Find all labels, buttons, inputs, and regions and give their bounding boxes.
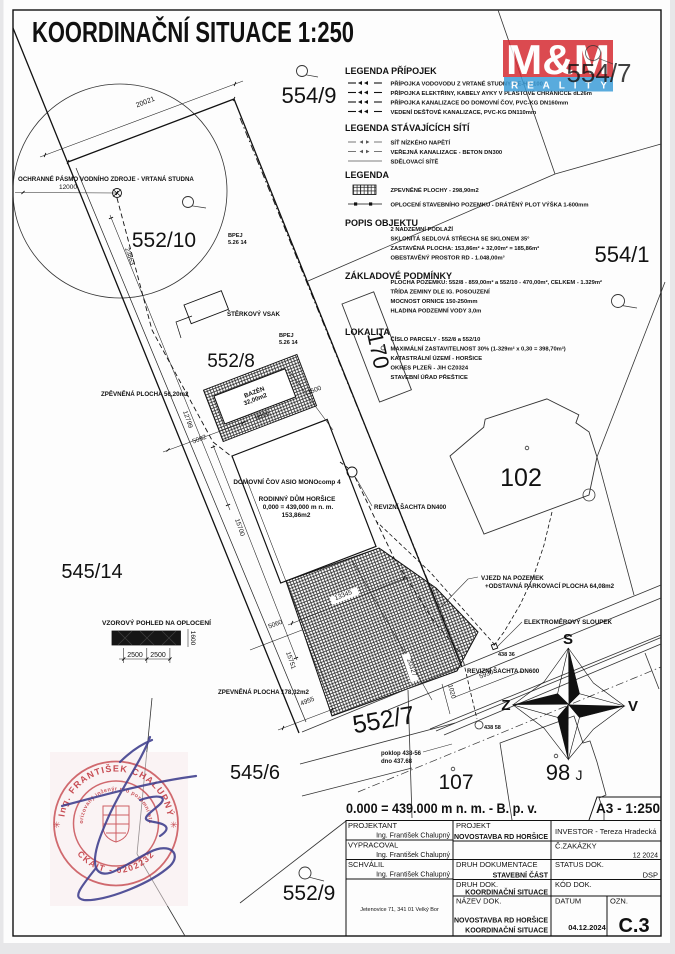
svg-text:DRUH DOKUMENTACE: DRUH DOKUMENTACE [456,860,538,869]
svg-text:107: 107 [438,771,473,794]
svg-text:PŘÍPOJKA KANALIZACE DO DOMOVNÍ: PŘÍPOJKA KANALIZACE DO DOMOVNÍ ČOV, PVC-… [391,99,569,107]
svg-text:LEGENDA PŘÍPOJEK: LEGENDA PŘÍPOJEK [345,65,437,76]
svg-text:545/6: 545/6 [230,762,280,784]
svg-text:PLOCHA POZEMKU: 552/8 - 859,00: PLOCHA POZEMKU: 552/8 - 859,00m² a 552/1… [391,279,603,286]
svg-text:Z: Z [501,697,510,714]
svg-text:0.000 = 439.000 m n. m. - B. p: 0.000 = 439.000 m n. m. - B. p. v. [346,801,537,816]
svg-text:OKRES PLZEŇ - JIH CZ0324: OKRES PLZEŇ - JIH CZ0324 [391,364,469,372]
svg-text:OPLOCENÍ STAVEBNÍHO POZEMKU -: OPLOCENÍ STAVEBNÍHO POZEMKU - DRÁTĚNÝ PL… [391,201,589,209]
svg-text:KATASTRÁLNÍ ÚZEMÍ - HORŠICE: KATASTRÁLNÍ ÚZEMÍ - HORŠICE [391,354,483,362]
svg-text:PROJEKTANT: PROJEKTANT [348,821,397,830]
svg-text:2500: 2500 [150,652,166,659]
svg-text:ČÍSLO PARCELY - 552/8 a 552/10: ČÍSLO PARCELY - 552/8 a 552/10 [391,335,481,343]
svg-text:TŘÍDA ZEMINY DLE IG. POSOUZENÍ: TŘÍDA ZEMINY DLE IG. POSOUZENÍ [391,288,491,296]
svg-text:✳: ✳ [170,820,178,830]
svg-text:DATUM: DATUM [555,897,581,906]
svg-text:554/1: 554/1 [594,242,649,267]
svg-text:552/10: 552/10 [132,229,196,252]
svg-text:REVIZNÍ ŠACHTA DN400: REVIZNÍ ŠACHTA DN400 [374,503,447,511]
svg-text:HLADINA PODZEMNÍ VODY 3,0m: HLADINA PODZEMNÍ VODY 3,0m [391,307,482,315]
svg-text:INVESTOR - Tereza Hradecká: INVESTOR - Tereza Hradecká [555,827,657,836]
svg-text:Č.ZAKÁZKY: Č.ZAKÁZKY [555,842,597,851]
svg-text:KOORDINAČNÍ SITUACE: KOORDINAČNÍ SITUACE [465,926,548,935]
svg-text:BPEJ: BPEJ [279,333,294,339]
svg-text:LEGENDA: LEGENDA [345,170,390,180]
svg-text:C.3: C.3 [618,915,649,937]
svg-text:DSP: DSP [643,871,658,880]
svg-text:VYPRACOVAL: VYPRACOVAL [348,841,398,850]
svg-text:SDĚLOVACÍ SÍTĚ: SDĚLOVACÍ SÍTĚ [391,158,439,166]
svg-text:LOKALITA: LOKALITA [345,327,390,337]
svg-text:LEGENDA STÁVAJÍCÍCH SÍTÍ: LEGENDA STÁVAJÍCÍCH SÍTÍ [345,123,470,133]
svg-text:V: V [628,698,638,715]
svg-text:A3 - 1:250: A3 - 1:250 [596,801,660,816]
svg-text:STAVEBNÍ ÚŘAD PŘEŠTICE: STAVEBNÍ ÚŘAD PŘEŠTICE [391,373,469,381]
svg-text:153,86m2: 153,86m2 [282,512,311,519]
svg-text:DRUH DOK.: DRUH DOK. [456,880,498,889]
svg-text:554/7: 554/7 [566,58,631,88]
svg-text:ZPEVNĚNÁ PLOCHA 178,32m2: ZPEVNĚNÁ PLOCHA 178,32m2 [218,688,309,696]
svg-text:+ODSTAVNÁ PARKOVACÍ PLOCHA 64,: +ODSTAVNÁ PARKOVACÍ PLOCHA 64,08m2 [485,582,615,590]
svg-text:STATUS DOK.: STATUS DOK. [555,860,604,869]
svg-text:VEŘEJNÁ KANALIZACE - BETON DN3: VEŘEJNÁ KANALIZACE - BETON DN300 [391,148,503,156]
svg-text:12 2024: 12 2024 [633,853,658,860]
svg-text:5.26 14: 5.26 14 [228,240,248,246]
svg-text:552/9: 552/9 [283,882,336,905]
svg-text:MOCNOST ORNICE 150-250mm: MOCNOST ORNICE 150-250mm [391,299,478,305]
svg-text:1600: 1600 [189,631,196,646]
svg-text:NOVOSTAVBA RD HORŠICE: NOVOSTAVBA RD HORŠICE [454,832,548,841]
svg-text:VEDENÍ DEŠŤOVÉ KANALIZACE, PVC: VEDENÍ DEŠŤOVÉ KANALIZACE, PVC-KG DN110m… [391,108,537,116]
svg-text:KOORDINAČNÍ SITUACE 1:250: KOORDINAČNÍ SITUACE 1:250 [32,15,354,49]
svg-text:OBESTAVĚNÝ PROSTOR RD - 1.048,: OBESTAVĚNÝ PROSTOR RD - 1.048,00m³ [391,254,505,262]
svg-text:98: 98 [546,760,570,785]
svg-text:✳: ✳ [53,820,61,830]
svg-text:REVIZNÍ ŠACHTA DN600: REVIZNÍ ŠACHTA DN600 [467,667,540,675]
svg-text:04.12.2024: 04.12.2024 [568,923,606,932]
svg-text:dno 437.68: dno 437.68 [381,759,413,765]
svg-text:438 58: 438 58 [484,725,501,731]
svg-text:ZPEVNĚNÉ PLOCHY - 298,90m2: ZPEVNĚNÉ PLOCHY - 298,90m2 [391,186,479,194]
svg-text:102: 102 [500,464,542,492]
svg-text:Ing. František Chalupný: Ing. František Chalupný [376,833,450,840]
svg-text:ZASTAVĚNÁ PLOCHA: 153,86m² + 3: ZASTAVĚNÁ PLOCHA: 153,86m² + 32,00m² = 1… [391,244,540,252]
svg-text:ELEKTROMĚROVÝ SLOUPEK: ELEKTROMĚROVÝ SLOUPEK [524,618,613,626]
svg-text:PROJEKT: PROJEKT [456,821,491,830]
svg-text:DOMOVNÍ ČOV ASIO MONOcomp 4: DOMOVNÍ ČOV ASIO MONOcomp 4 [233,477,341,486]
svg-text:2500: 2500 [127,652,143,659]
svg-text:545/14: 545/14 [61,561,122,583]
svg-text:0,000 = 439,000 m n. m.: 0,000 = 439,000 m n. m. [263,504,334,511]
svg-text:poklop 438-56: poklop 438-56 [381,751,422,757]
svg-text:STAVEBNÍ ČÁST: STAVEBNÍ ČÁST [493,871,549,880]
svg-text:OCHRANNÉ PÁSMO VODNÍHO ZDROJE: OCHRANNÉ PÁSMO VODNÍHO ZDROJE - VRTANÁ S… [18,175,194,183]
svg-text:S: S [563,631,573,648]
svg-text:MAXIMÁLNÍ ZASTAVITELNOST 30% (: MAXIMÁLNÍ ZASTAVITELNOST 30% (1-329m² x … [391,345,566,353]
svg-text:VZOROVÝ POHLED NA OPLOCENÍ: VZOROVÝ POHLED NA OPLOCENÍ [102,618,211,627]
svg-text:552/8: 552/8 [207,351,255,372]
svg-text:BPEJ: BPEJ [228,233,243,239]
svg-text:5.26 14: 5.26 14 [279,340,299,346]
svg-text:KÓD DOK.: KÓD DOK. [555,880,592,889]
svg-text:NÁZEV DOK.: NÁZEV DOK. [456,897,501,906]
svg-text:SCHVÁLIL: SCHVÁLIL [348,860,384,869]
svg-text:Ing. František Chalupný: Ing. František Chalupný [376,852,450,859]
svg-text:SKLONITÁ SEDLOVÁ STŘECHA SE SK: SKLONITÁ SEDLOVÁ STŘECHA SE SKLONEM 35° [391,235,531,243]
svg-text:J: J [576,767,583,783]
svg-text:ŠTĚRKOVÝ VSAK: ŠTĚRKOVÝ VSAK [227,310,280,318]
svg-text:2 NADZEMNÍ PODLAŽÍ: 2 NADZEMNÍ PODLAŽÍ [391,225,454,233]
svg-text:12000: 12000 [59,184,77,191]
svg-text:554/9: 554/9 [281,83,336,108]
svg-text:NOVOSTAVBA RD HORŠICE: NOVOSTAVBA RD HORŠICE [454,916,548,925]
svg-text:438 36: 438 36 [498,652,515,658]
svg-text:ZPĚVNĚNÁ PLOCHA 56,20m2: ZPĚVNĚNÁ PLOCHA 56,20m2 [101,390,189,398]
svg-text:Jetenovice 71, 341 01 Velký Bo: Jetenovice 71, 341 01 Velký Bor [360,907,439,913]
svg-text:KOORDINAČNÍ SITUACE: KOORDINAČNÍ SITUACE [465,888,548,897]
svg-text:Ing. František Chalupný: Ing. František Chalupný [376,872,450,879]
svg-text:SÍŤ NÍZKÉHO NAPĚTÍ: SÍŤ NÍZKÉHO NAPĚTÍ [391,139,451,147]
svg-text:VJEZD NA POZEMEK: VJEZD NA POZEMEK [481,575,544,582]
svg-text:OZN.: OZN. [610,897,628,906]
